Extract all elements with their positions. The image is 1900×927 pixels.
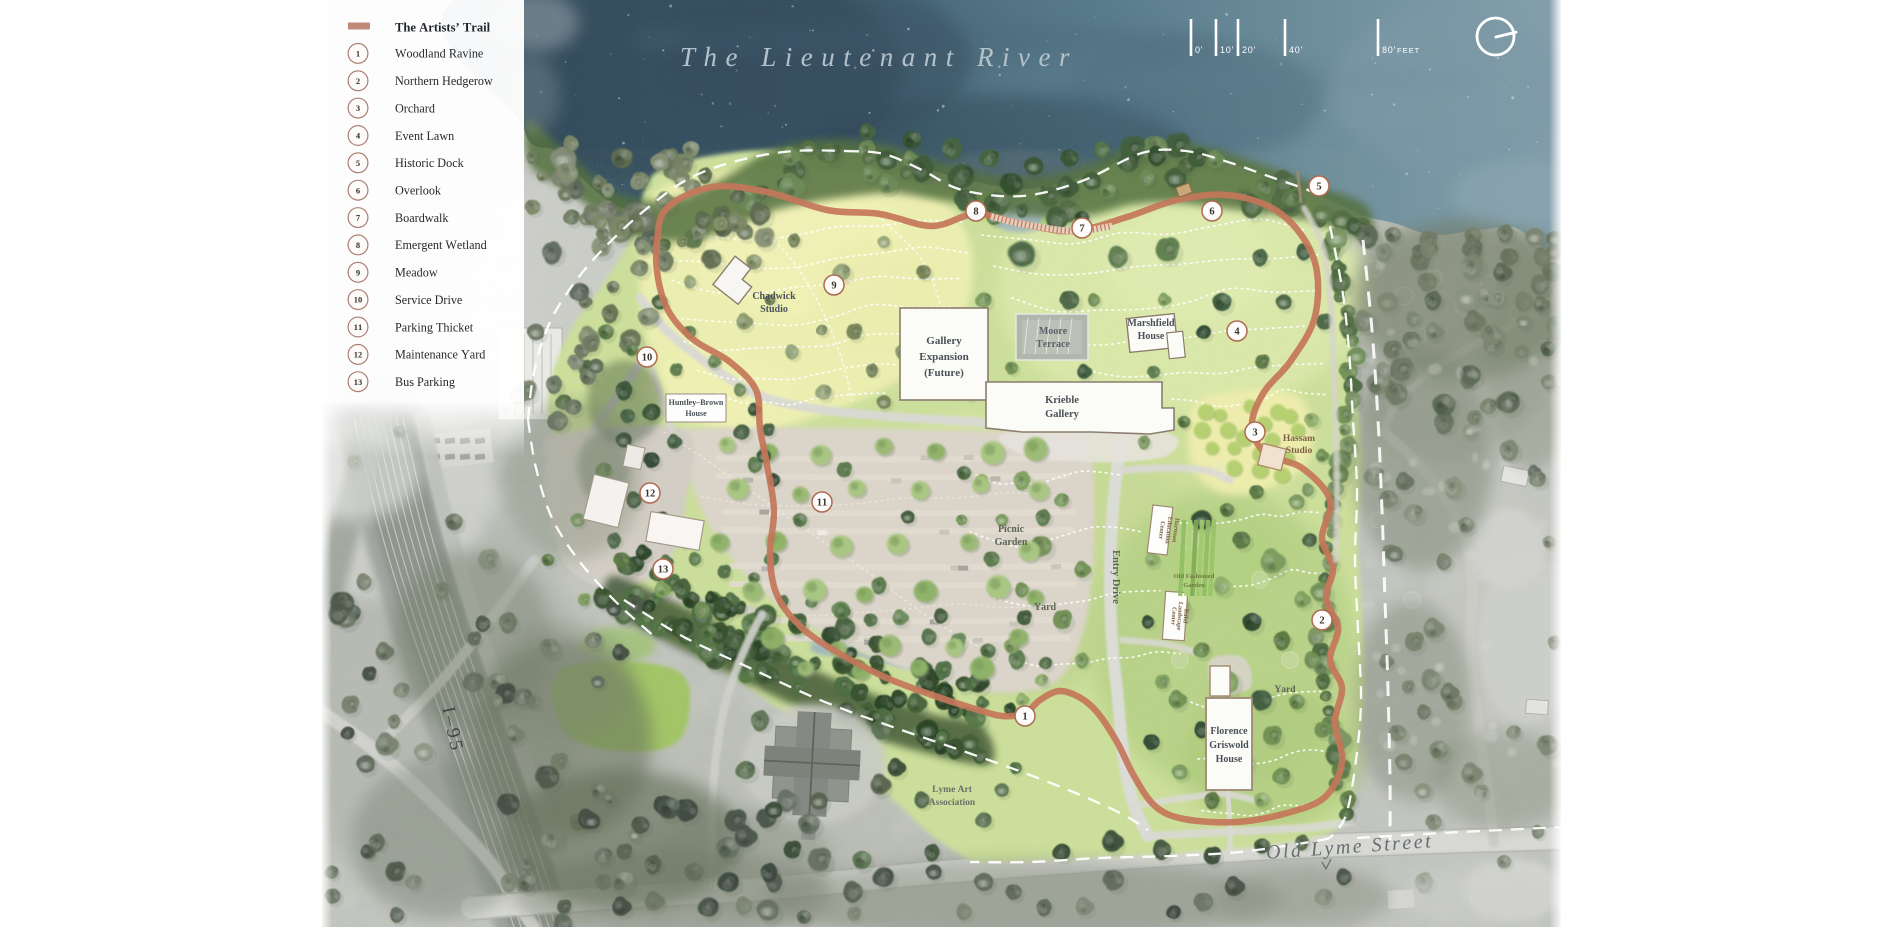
svg-text:The Lieutenant River: The Lieutenant River bbox=[680, 42, 1078, 72]
svg-text:Lyme Art: Lyme Art bbox=[932, 785, 973, 795]
svg-text:Florence: Florence bbox=[1210, 726, 1248, 737]
svg-text:Parking Thicket: Parking Thicket bbox=[395, 320, 474, 334]
svg-text:Garden: Garden bbox=[1183, 582, 1205, 589]
svg-text:8: 8 bbox=[973, 207, 978, 218]
svg-text:12: 12 bbox=[354, 350, 363, 360]
svg-text:11: 11 bbox=[354, 322, 363, 332]
svg-text:3: 3 bbox=[1252, 428, 1257, 439]
svg-text:10: 10 bbox=[354, 295, 363, 305]
svg-text:13: 13 bbox=[658, 565, 669, 576]
svg-text:2: 2 bbox=[1319, 616, 1324, 627]
svg-text:Terrace: Terrace bbox=[1036, 339, 1070, 350]
svg-text:Yard: Yard bbox=[1034, 602, 1057, 613]
svg-text:Maintenance Yard: Maintenance Yard bbox=[395, 348, 485, 362]
svg-text:6: 6 bbox=[356, 185, 360, 195]
svg-text:4: 4 bbox=[1234, 327, 1240, 338]
svg-text:Service Drive: Service Drive bbox=[395, 293, 462, 307]
svg-text:Orchard: Orchard bbox=[395, 101, 435, 115]
svg-text:House: House bbox=[1216, 754, 1243, 765]
svg-text:20': 20' bbox=[1242, 45, 1256, 55]
svg-text:Emergent Wetland: Emergent Wetland bbox=[395, 238, 487, 252]
svg-text:1: 1 bbox=[356, 49, 360, 59]
svg-text:Woodland Ravine: Woodland Ravine bbox=[395, 47, 483, 61]
svg-text:10': 10' bbox=[1220, 45, 1234, 55]
svg-text:40': 40' bbox=[1289, 45, 1303, 55]
svg-text:Marshfield: Marshfield bbox=[1127, 318, 1175, 329]
svg-text:Event Lawn: Event Lawn bbox=[395, 129, 454, 143]
svg-text:Historic Dock: Historic Dock bbox=[395, 156, 465, 170]
svg-text:Garden: Garden bbox=[995, 537, 1028, 548]
svg-text:1: 1 bbox=[1022, 712, 1027, 723]
svg-text:8: 8 bbox=[356, 240, 360, 250]
svg-text:Northern Hedgerow: Northern Hedgerow bbox=[395, 74, 493, 88]
svg-text:Center: Center bbox=[1169, 607, 1177, 626]
svg-text:Meadow: Meadow bbox=[395, 266, 438, 280]
svg-text:Gallery: Gallery bbox=[1045, 409, 1080, 420]
svg-text:9: 9 bbox=[356, 267, 360, 277]
svg-text:Hassam: Hassam bbox=[1283, 434, 1315, 444]
svg-text:Chadwick: Chadwick bbox=[752, 291, 796, 302]
svg-text:Huntley–Brown: Huntley–Brown bbox=[669, 398, 724, 407]
svg-text:Yard: Yard bbox=[1274, 685, 1296, 695]
svg-text:Griswold: Griswold bbox=[1209, 740, 1249, 751]
svg-text:0': 0' bbox=[1195, 45, 1203, 55]
svg-text:5: 5 bbox=[356, 158, 360, 168]
svg-text:Bus Parking: Bus Parking bbox=[395, 375, 455, 389]
svg-text:Boardwalk: Boardwalk bbox=[395, 211, 449, 225]
svg-text:7: 7 bbox=[1079, 224, 1084, 235]
svg-text:Studio: Studio bbox=[1286, 446, 1313, 456]
svg-text:FEET: FEET bbox=[1397, 46, 1420, 55]
svg-text:11: 11 bbox=[817, 498, 828, 509]
svg-text:Association: Association bbox=[929, 798, 976, 808]
svg-text:80': 80' bbox=[1382, 45, 1396, 55]
svg-text:Krieble: Krieble bbox=[1045, 395, 1079, 406]
svg-text:5: 5 bbox=[1316, 182, 1321, 193]
svg-text:13: 13 bbox=[354, 377, 363, 387]
svg-text:2: 2 bbox=[356, 76, 360, 86]
svg-text:House: House bbox=[1138, 331, 1165, 342]
svg-text:House: House bbox=[685, 409, 707, 418]
svg-text:Studio: Studio bbox=[760, 304, 788, 315]
svg-text:Old Fashioned: Old Fashioned bbox=[1174, 573, 1215, 580]
svg-text:Overlook: Overlook bbox=[395, 184, 442, 198]
svg-text:(Future): (Future) bbox=[924, 367, 964, 379]
svg-text:12: 12 bbox=[645, 489, 656, 500]
svg-text:9: 9 bbox=[831, 281, 836, 292]
svg-text:Gallery: Gallery bbox=[926, 335, 962, 347]
svg-text:Entry Drive: Entry Drive bbox=[1110, 550, 1121, 604]
svg-text:3: 3 bbox=[356, 103, 360, 113]
svg-text:10: 10 bbox=[642, 353, 653, 364]
svg-text:6: 6 bbox=[1209, 207, 1214, 218]
svg-text:Moore: Moore bbox=[1039, 326, 1068, 337]
svg-text:Expansion: Expansion bbox=[919, 351, 969, 363]
svg-text:The Artists’ Trail: The Artists’ Trail bbox=[395, 21, 491, 35]
svg-text:Picnic: Picnic bbox=[998, 524, 1025, 535]
